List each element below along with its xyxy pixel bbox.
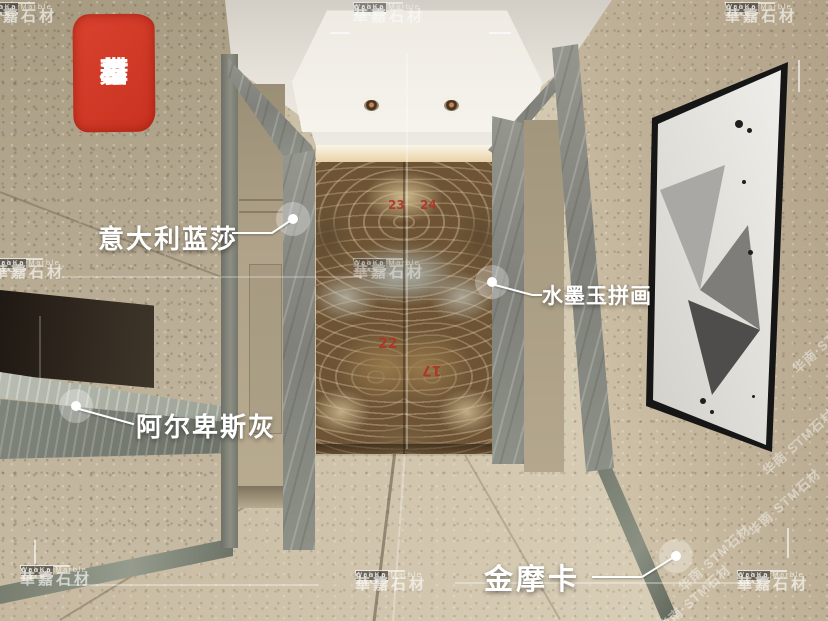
wall-niche [0, 290, 154, 388]
material-label-alpine-gray: 阿尔卑斯灰 [136, 407, 276, 444]
registration-line [62, 276, 362, 278]
registration-line [406, 54, 408, 449]
marble-showroom-rendering: 23 24 22 17 H&JGroup 華嘉石材 WahKa Marble H… [0, 0, 828, 621]
callout-leader-line [232, 232, 273, 234]
slab-number: 17 [422, 362, 441, 378]
registration-line [34, 540, 36, 564]
recess-soffit-line [239, 199, 283, 201]
registration-line [787, 528, 789, 558]
ink-splatter [748, 250, 753, 255]
callout-dot [288, 214, 298, 224]
ink-splatter [710, 410, 714, 414]
material-label-ink-jade-mosaic: 水墨玉拼画 [542, 280, 652, 310]
registration-line [68, 584, 318, 586]
gray-marble-trim [221, 54, 238, 548]
callout-dot [487, 277, 497, 287]
callout-dot [671, 551, 681, 561]
ink-splatter [742, 180, 746, 184]
ink-splatter [752, 395, 755, 398]
ink-splatter [700, 398, 706, 404]
floor-joint-center-highlight [392, 448, 406, 621]
material-label-italian-lansha: 意大利蓝莎 [98, 219, 238, 256]
callout-leader-line [532, 294, 542, 296]
slab-number: 22 [378, 336, 397, 352]
floor-joint-center [372, 449, 396, 621]
slab-number: 23 [388, 198, 405, 212]
onyx-base-shadow [316, 444, 492, 456]
callout-leader-line [592, 576, 642, 578]
red-seal-logo: 石 華 材 嘉 [72, 14, 155, 133]
ink-splatter [747, 128, 752, 133]
material-label-gold-mocha: 金摩卡 [484, 556, 580, 598]
ink-splatter [735, 120, 743, 128]
recess-floor-shadow [237, 486, 285, 508]
registration-line [330, 32, 350, 34]
registration-line [798, 60, 800, 92]
downlight-icon [364, 100, 379, 111]
registration-line [489, 32, 511, 34]
slab-number: 24 [420, 198, 437, 212]
callout-dot [71, 401, 81, 411]
downlight-icon [444, 100, 459, 111]
registration-line [39, 316, 41, 378]
